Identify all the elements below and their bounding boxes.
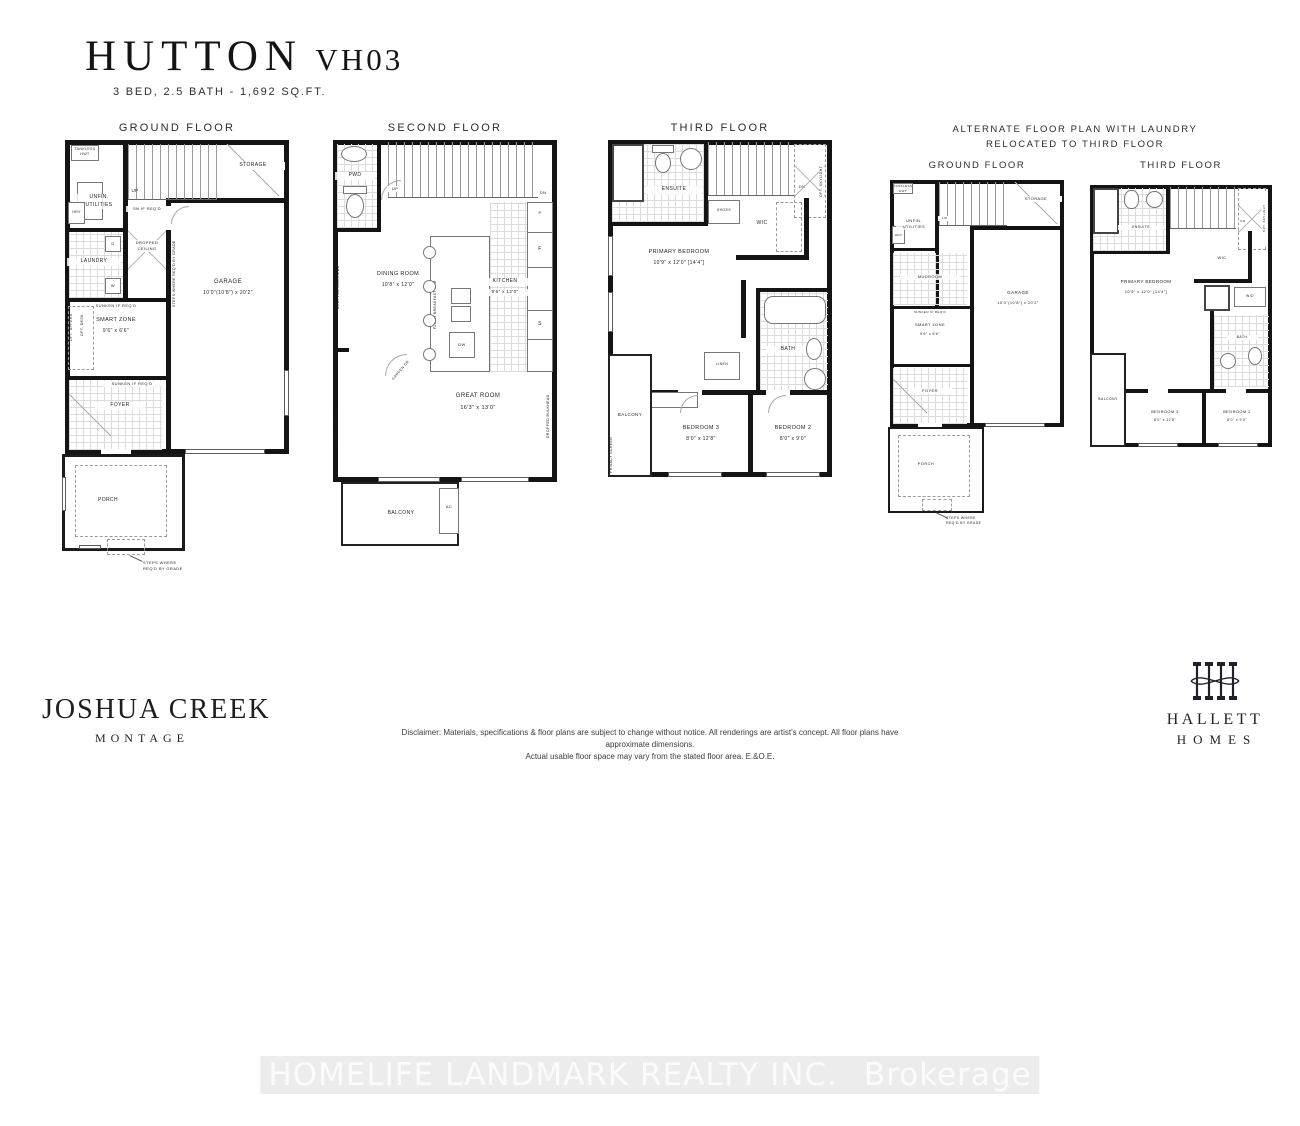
stairs-dn-label: DN [535,190,551,196]
toilet [1124,190,1139,209]
fridge-label: F [527,246,553,254]
pwd-label: PWD [335,172,375,180]
wall [970,226,974,427]
sink [1146,191,1163,208]
smart-zone-label: SMART ZONE [896,322,964,328]
brokerage-watermark: HOMELIFE LANDMARK REALTY INC.Brokerage [260,1056,1039,1094]
garage-dims: 10'0"(10'8") x 20'2" [171,290,285,298]
porch-label: PORCH [83,497,133,505]
porch-label: PORCH [906,461,946,467]
window [668,472,722,477]
porch-walls: PORCH [888,427,984,513]
steps-where-reqd-vert: STEPS WHERE REQ'D BY GRADE [172,232,177,316]
bedroom2-label: BEDROOM 2 [756,424,830,432]
brokerage-name: HOMELIFE LANDMARK REALTY INC. [268,1057,838,1093]
plan-model: VH03 [315,42,403,77]
mudroom-label: MUDROOM [900,274,960,280]
bedroom3-dims: 8'0" x 12'8" [656,436,746,444]
window [1138,443,1178,447]
bedroom2-dims: 8'0" x 9'0" [756,436,830,444]
sink [804,368,826,390]
laundry-label: LAUNDRY [67,258,121,266]
third-floor-plan: ENSUITE DN OPT. SKYLIGHT SHOES WIC PRIMA… [608,140,832,480]
alt-ground-title: GROUND FLOOR [890,158,1064,173]
alt-third-title: THIRD FLOOR [1090,158,1272,173]
ground-floor-plan: UP STORAGE TANKLESS HWT UNFIN. UTILITIES… [65,140,289,576]
wall [166,198,171,454]
stairs-up-label: UP [938,216,952,221]
utilities-label: UNFIN. UTILITIES [896,218,932,230]
dropped-ceiling-label: DROPPED CEILING [128,240,166,252]
window [608,292,613,332]
bedroom2-label: BEDROOM 2 [1206,409,1268,415]
porch-steps [922,499,952,511]
foyer-stairs [69,380,111,450]
wall [65,298,166,302]
disclaimer: Disclaimer: Materials, specifications & … [380,727,920,763]
sn-if-reqd-label: SN IF REQ'D [126,206,168,212]
opt-desk-label: OPT. DESK [80,310,85,340]
balcony-label: BALCONY [612,412,648,419]
opt-uppers-label: OPT. UPPERS [69,310,74,344]
smart-zone-dims: 9'6" x 6'6" [896,332,964,337]
shoes-label: SHOES [708,208,740,213]
balcony-label: BALCONY [1093,397,1123,402]
shower [1204,285,1230,311]
alt-third-floor-plan: ENSUITE DN OPT. SKYLIGHT WIC PRIMARY BED… [1090,185,1272,460]
stairs [708,142,794,196]
toilet [346,194,364,218]
second-floor-plan: PWD UP DN DINING ROOM 10'8" x 12'0" DROP… [333,140,557,550]
wall [970,226,1064,230]
page-title: HUTTON VH03 [85,32,403,81]
toilet [1248,347,1262,365]
hrv-label: HRV [68,210,85,215]
storage-area [1010,182,1062,224]
linen-label: LINEN [704,362,740,367]
skylight-label: OPT. SKYLIGHT [1262,191,1267,245]
foyer-label: FOYER [95,402,145,410]
toilet [655,153,671,173]
third-floor-title: THIRD FLOOR [608,122,832,134]
garage-dims: 10'0"(10'8") x 20'2" [974,300,1062,306]
window [284,370,289,416]
window [766,472,820,477]
kitchen-floor [490,202,527,372]
window [608,236,613,276]
stool [423,348,436,361]
skylight-label: OPT. SKYLIGHT [819,148,824,214]
community-logo: JOSHUA CREEK [42,694,271,726]
kitchen-sink [451,306,471,322]
bulkhead-left: DROPPED BULKHEAD [336,248,341,326]
ac-box [439,488,459,534]
stairs [388,142,538,198]
alternate-plan-header: ALTERNATE FLOOR PLAN WITH LAUNDRY RELOCA… [950,122,1200,152]
toilet-tank [652,145,674,153]
wall [333,348,349,352]
stove-label: S [527,321,553,329]
sink [341,146,367,162]
wic-label: WIC [1202,255,1242,261]
toilet [806,338,822,360]
wall [608,222,708,226]
privacy-screen-label: PRIVACY SCREEN [334,398,339,458]
wall [748,395,753,477]
tub [764,296,826,324]
ensuite-label: ENSUITE [1118,225,1164,230]
primary-label: PRIMARY BEDROOM [620,248,738,256]
bath-label: BATH [766,346,810,354]
primary-dims: 10'9" x 12'0" [14'4"] [620,260,738,268]
plan-specs: 3 BED, 2.5 BATH - 1,692 SQ.FT. [113,86,326,98]
wall [1194,279,1252,283]
builder-type: HOMES [1162,732,1272,748]
bedroom3-label: BEDROOM 3 [1130,409,1200,415]
window [461,477,529,482]
bulkhead-right: DROPPED BULKHEAD [546,380,551,452]
hrv-label: HRV [892,233,905,238]
window [1218,443,1258,447]
balcony-walls: BALCONY [1090,353,1126,447]
storage-label: STORAGE [221,162,285,170]
wall [333,228,381,232]
bedroom3-label: BEDROOM 3 [656,424,746,432]
alt-ground-floor-plan: UP STORAGE TANKLESS HWT HRV UNFIN. UTILI… [890,180,1064,525]
leader-line [129,555,142,562]
porch-steps [107,539,145,555]
second-floor-title: SECOND FLOOR [333,122,557,134]
sunken-label: SUNKEN IF REQ'D [85,303,147,309]
sink [1220,353,1236,369]
dryer-label: D [105,241,121,247]
bedroom3-dims: 8'0" x 12'8" [1130,418,1200,423]
kitchen-sink [451,288,471,304]
floorplan-sheet: { "header": { "title": "HUTTON", "model"… [0,0,1300,1126]
door-gap [766,390,790,395]
wall [377,140,381,232]
dishwasher-label: DW [449,342,475,348]
flush-bar-label: FLUSH BREAKFAST BAR [433,252,438,358]
tankless-hwt-label: TANKLESS HWT [893,184,913,193]
privacy-screen-label: PRIVACY SCREEN [609,435,614,475]
porch-window [79,545,101,549]
ground-floor-title: GROUND FLOOR [65,122,289,134]
steps-note: STEPS WHERE REQ'D BY GRADE [143,560,207,572]
wall [1124,389,1272,393]
wall [741,280,746,338]
counter [527,202,553,372]
foyer-label: FOYER [908,388,952,394]
wic-label: WIC [742,220,782,228]
plan-name: HUTTON [85,33,303,80]
builder-monogram-icon [1183,660,1247,702]
kitchen-dims: 9'6" x 12'0" [479,289,531,296]
door-gap [166,206,171,230]
garage-door [985,423,1045,427]
stairs-up-label: UP [387,186,403,192]
wall [1090,251,1170,254]
wall [890,364,970,367]
shower [612,144,644,202]
wall [890,306,970,309]
tankless-hwt-label: TANKLESS HWT [70,147,100,158]
sunken2-label: SUNKEN IF REQ'D [103,381,161,387]
ac-label: AC [439,504,459,510]
stool [423,314,436,327]
ensuite-label: ENSUITE [646,186,702,194]
door-gap [1226,389,1246,393]
balcony-walls: BALCONY [608,354,652,477]
sunken-label: SUNKEN IF REQ'D [902,310,958,315]
wall [1248,231,1252,283]
community-sub: MONTAGE [42,731,242,746]
builder-logo: HALLETT HOMES [1158,660,1272,748]
washer-dryer-label: W/D [1234,294,1266,299]
balcony-label: BALCONY [371,510,431,518]
garage-door [185,449,265,454]
toilet-tank [343,186,367,194]
shower [1093,188,1119,234]
wall [804,198,809,260]
brokerage-suffix: Brokerage [864,1057,1032,1093]
door-gap [1148,389,1168,393]
washer-label: W [105,283,121,289]
bath-label: BATH [1226,335,1258,340]
porch-window [62,477,66,511]
kitchen-label: KITCHEN [479,278,531,286]
stool [423,280,436,293]
porch-walls: PORCH [62,454,185,551]
great-room-dims: 16'3" x 13'0" [428,404,528,412]
stairs [1170,187,1236,229]
primary-label: PRIMARY BEDROOM [1096,279,1196,286]
builder-name: HALLETT [1158,711,1272,729]
garage-label: GARAGE [171,278,285,287]
foyer-stairs [893,368,927,424]
pantry-label: P [527,210,553,216]
storage-area [221,144,285,196]
steps-note: STEPS WHERE REQ'D BY GRADE [946,516,1002,527]
sink [680,148,702,170]
primary-dims: 10'9" x 12'0" [14'4"] [1096,289,1196,295]
stairs-up-label: UP [127,188,143,195]
wall [890,248,935,251]
great-room-label: GREAT ROOM [428,392,528,401]
storage-label: STORAGE [1010,196,1062,202]
wall [736,255,808,260]
garage-label: GARAGE [974,290,1062,297]
stool [423,246,436,259]
bedroom2-dims: 8'0" x 9'0" [1206,418,1268,423]
balcony-walls: BALCONY AC [341,482,459,546]
